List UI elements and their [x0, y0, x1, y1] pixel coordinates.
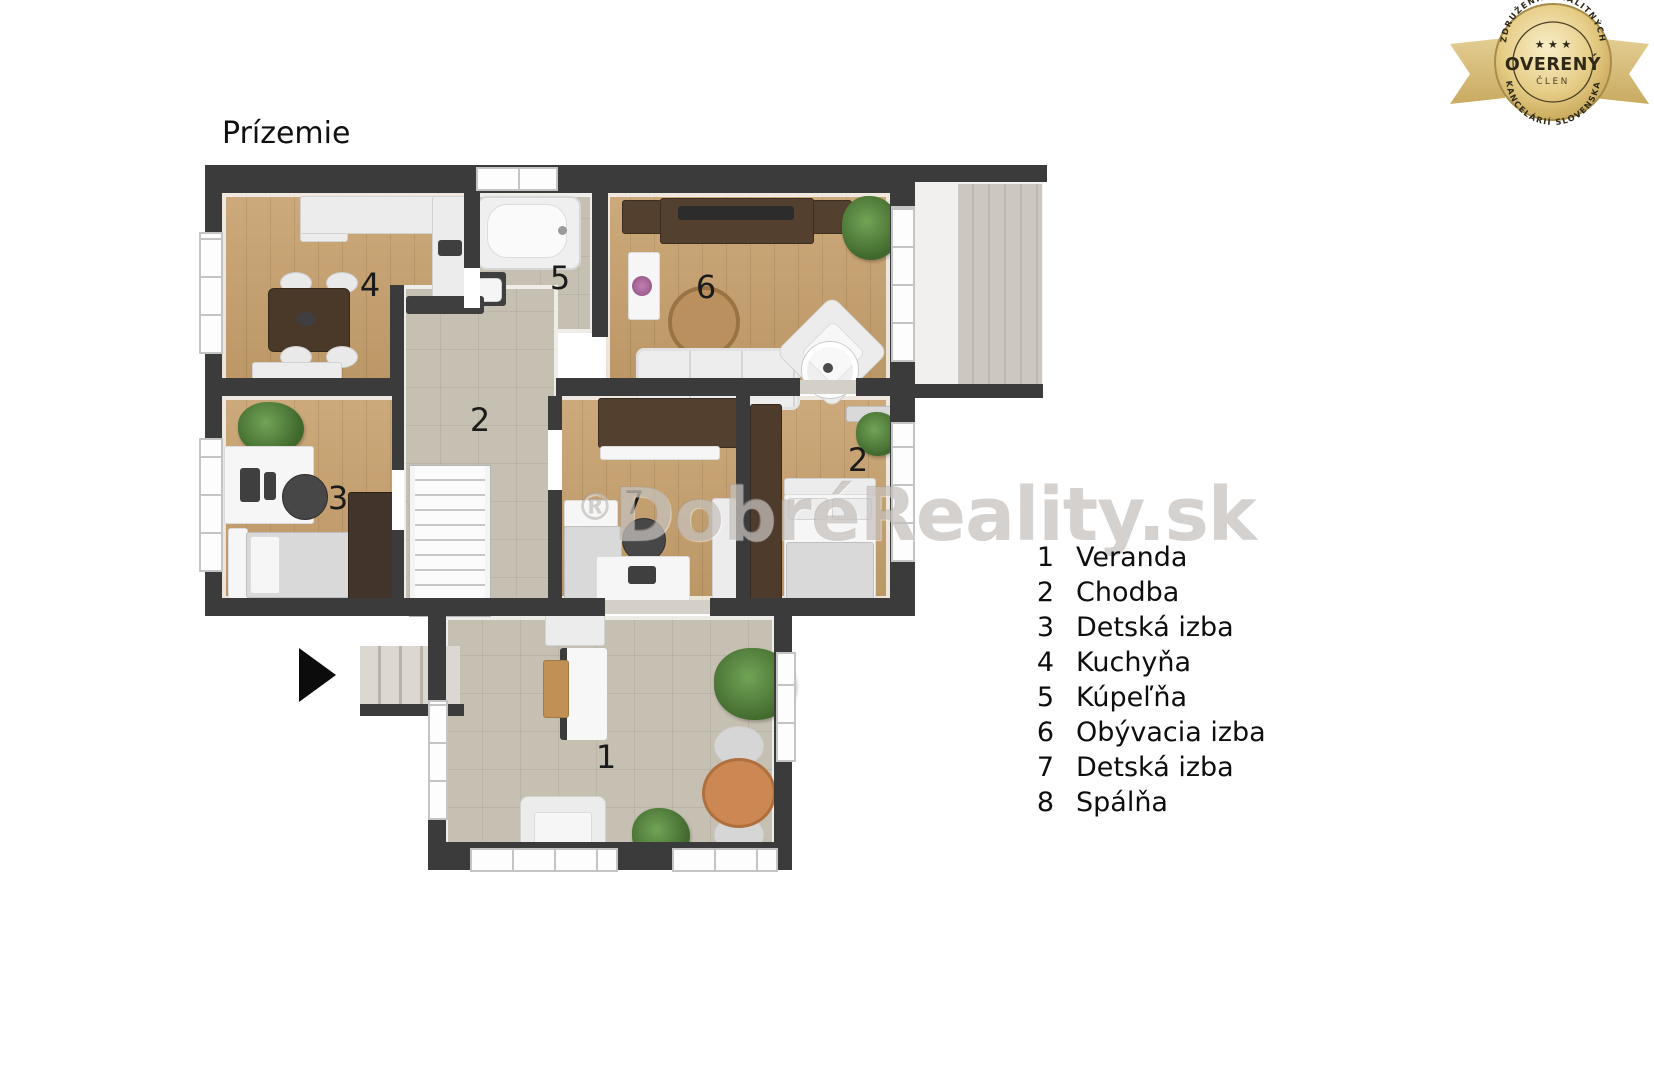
- laptop: [628, 566, 656, 584]
- legend-num: 4: [1030, 647, 1054, 678]
- bed-headboard-child1: [228, 528, 248, 602]
- window-veranda-side-left: [428, 700, 448, 820]
- veranda-round-table: [702, 758, 776, 828]
- shelf-child2: [600, 446, 720, 460]
- monitor-small: [264, 472, 276, 500]
- legend-num: 3: [1030, 612, 1054, 643]
- legend-row: 4Kuchyňa: [1030, 645, 1266, 680]
- legend-row: 5Kúpeľňa: [1030, 680, 1266, 715]
- badge-stars-icon: ★ ★ ★: [1535, 38, 1572, 51]
- badge-subtitle: ČLEN: [1536, 75, 1570, 87]
- wall-mid-right-b: [856, 378, 890, 396]
- legend-num: 8: [1030, 787, 1054, 818]
- window-bathroom: [476, 167, 558, 191]
- bathtub-inner: [487, 204, 567, 258]
- door-bathroom: [464, 268, 480, 308]
- legend-label: Detská izba: [1076, 612, 1234, 643]
- door-room3: [392, 470, 404, 530]
- tv-unit-left: [622, 200, 662, 234]
- legend-row: 3Detská izba: [1030, 610, 1266, 645]
- legend-row: 7Detská izba: [1030, 750, 1266, 785]
- office-chair: [282, 474, 328, 520]
- wall-kitchen-hall: [390, 285, 404, 382]
- window-veranda-left: [470, 848, 618, 872]
- legend-num: 2: [1030, 577, 1054, 608]
- legend-label: Kúpeľňa: [1076, 682, 1187, 713]
- entrance-arrow-icon: [299, 648, 336, 702]
- wall-bottom-left: [205, 598, 440, 616]
- wall-terrace-bottom: [915, 384, 1043, 398]
- window-veranda-side-right: [776, 652, 796, 762]
- tv-screen: [678, 206, 794, 220]
- wall-living-left: [592, 165, 608, 337]
- legend-row: 2Chodba: [1030, 575, 1266, 610]
- page-title: Prízemie: [222, 116, 350, 151]
- room-label-bathroom: 5: [550, 259, 570, 297]
- room-label-child1: 3: [328, 479, 348, 517]
- floorplan-page: Prízemie: [0, 0, 1654, 1080]
- window-kitchen: [199, 232, 223, 354]
- terrace-deck: [958, 184, 1042, 384]
- wall-room3-right-a: [392, 396, 404, 470]
- room-label-veranda: 1: [596, 738, 616, 776]
- legend-label: Spálňa: [1076, 787, 1168, 818]
- bath-faucet: [558, 226, 567, 235]
- legend-num: 6: [1030, 717, 1054, 748]
- legend-row: 1Veranda: [1030, 540, 1266, 575]
- window-living: [891, 206, 915, 362]
- staircase: [410, 466, 490, 616]
- wall-top: [205, 165, 915, 193]
- door-living-bedroom: [800, 380, 856, 394]
- legend-label: Veranda: [1076, 542, 1187, 573]
- window-veranda-right: [672, 848, 778, 872]
- monitor: [240, 468, 260, 502]
- pillow-child1: [250, 536, 280, 594]
- table-centerpiece: [296, 312, 316, 326]
- room-label-hallway: 2: [470, 401, 490, 439]
- legend-row: 8Spálňa: [1030, 785, 1266, 820]
- room-legend: 1Veranda 2Chodba 3Detská izba 4Kuchyňa 5…: [1030, 540, 1266, 820]
- room-label-living: 6: [696, 268, 716, 306]
- legend-label: Detská izba: [1076, 752, 1234, 783]
- wall-bathroom-left: [464, 190, 480, 268]
- legend-num: 5: [1030, 682, 1054, 713]
- legend-label: Chodba: [1076, 577, 1179, 608]
- wall-mid-right-a: [556, 378, 800, 396]
- legend-num: 1: [1030, 542, 1054, 573]
- room-label-kitchen: 4: [360, 266, 380, 304]
- tv-cabinet: [660, 198, 814, 244]
- legend-label: Obývacia izba: [1076, 717, 1266, 748]
- wall-bottom-right: [710, 598, 915, 616]
- window-child1: [199, 438, 223, 572]
- kitchen-sink: [438, 240, 462, 256]
- wardrobe-child2-dark: [598, 398, 748, 448]
- legend-num: 7: [1030, 752, 1054, 783]
- ceiling-fan-hub: [823, 363, 833, 373]
- door-veranda: [605, 600, 710, 614]
- badge-title: OVERENÝ: [1505, 53, 1601, 75]
- flower-vase: [632, 276, 652, 296]
- door-room7: [548, 430, 562, 490]
- legend-label: Kuchyňa: [1076, 647, 1191, 678]
- wall-hall-room7-a: [548, 396, 562, 430]
- veranda-wood-table: [543, 660, 569, 718]
- watermark-registered-icon: ®: [576, 485, 613, 529]
- entrance-step-base: [360, 704, 464, 716]
- legend-row: 6Obývacia izba: [1030, 715, 1266, 750]
- wall-mid-left: [205, 378, 404, 396]
- wall-terrace-top: [905, 165, 1047, 182]
- wall-bottom-mid: [440, 598, 605, 616]
- verified-member-badge: ZDRUŽENIE REALITNÝCH KANCELÁRIÍ SLOVENSK…: [1445, 0, 1654, 135]
